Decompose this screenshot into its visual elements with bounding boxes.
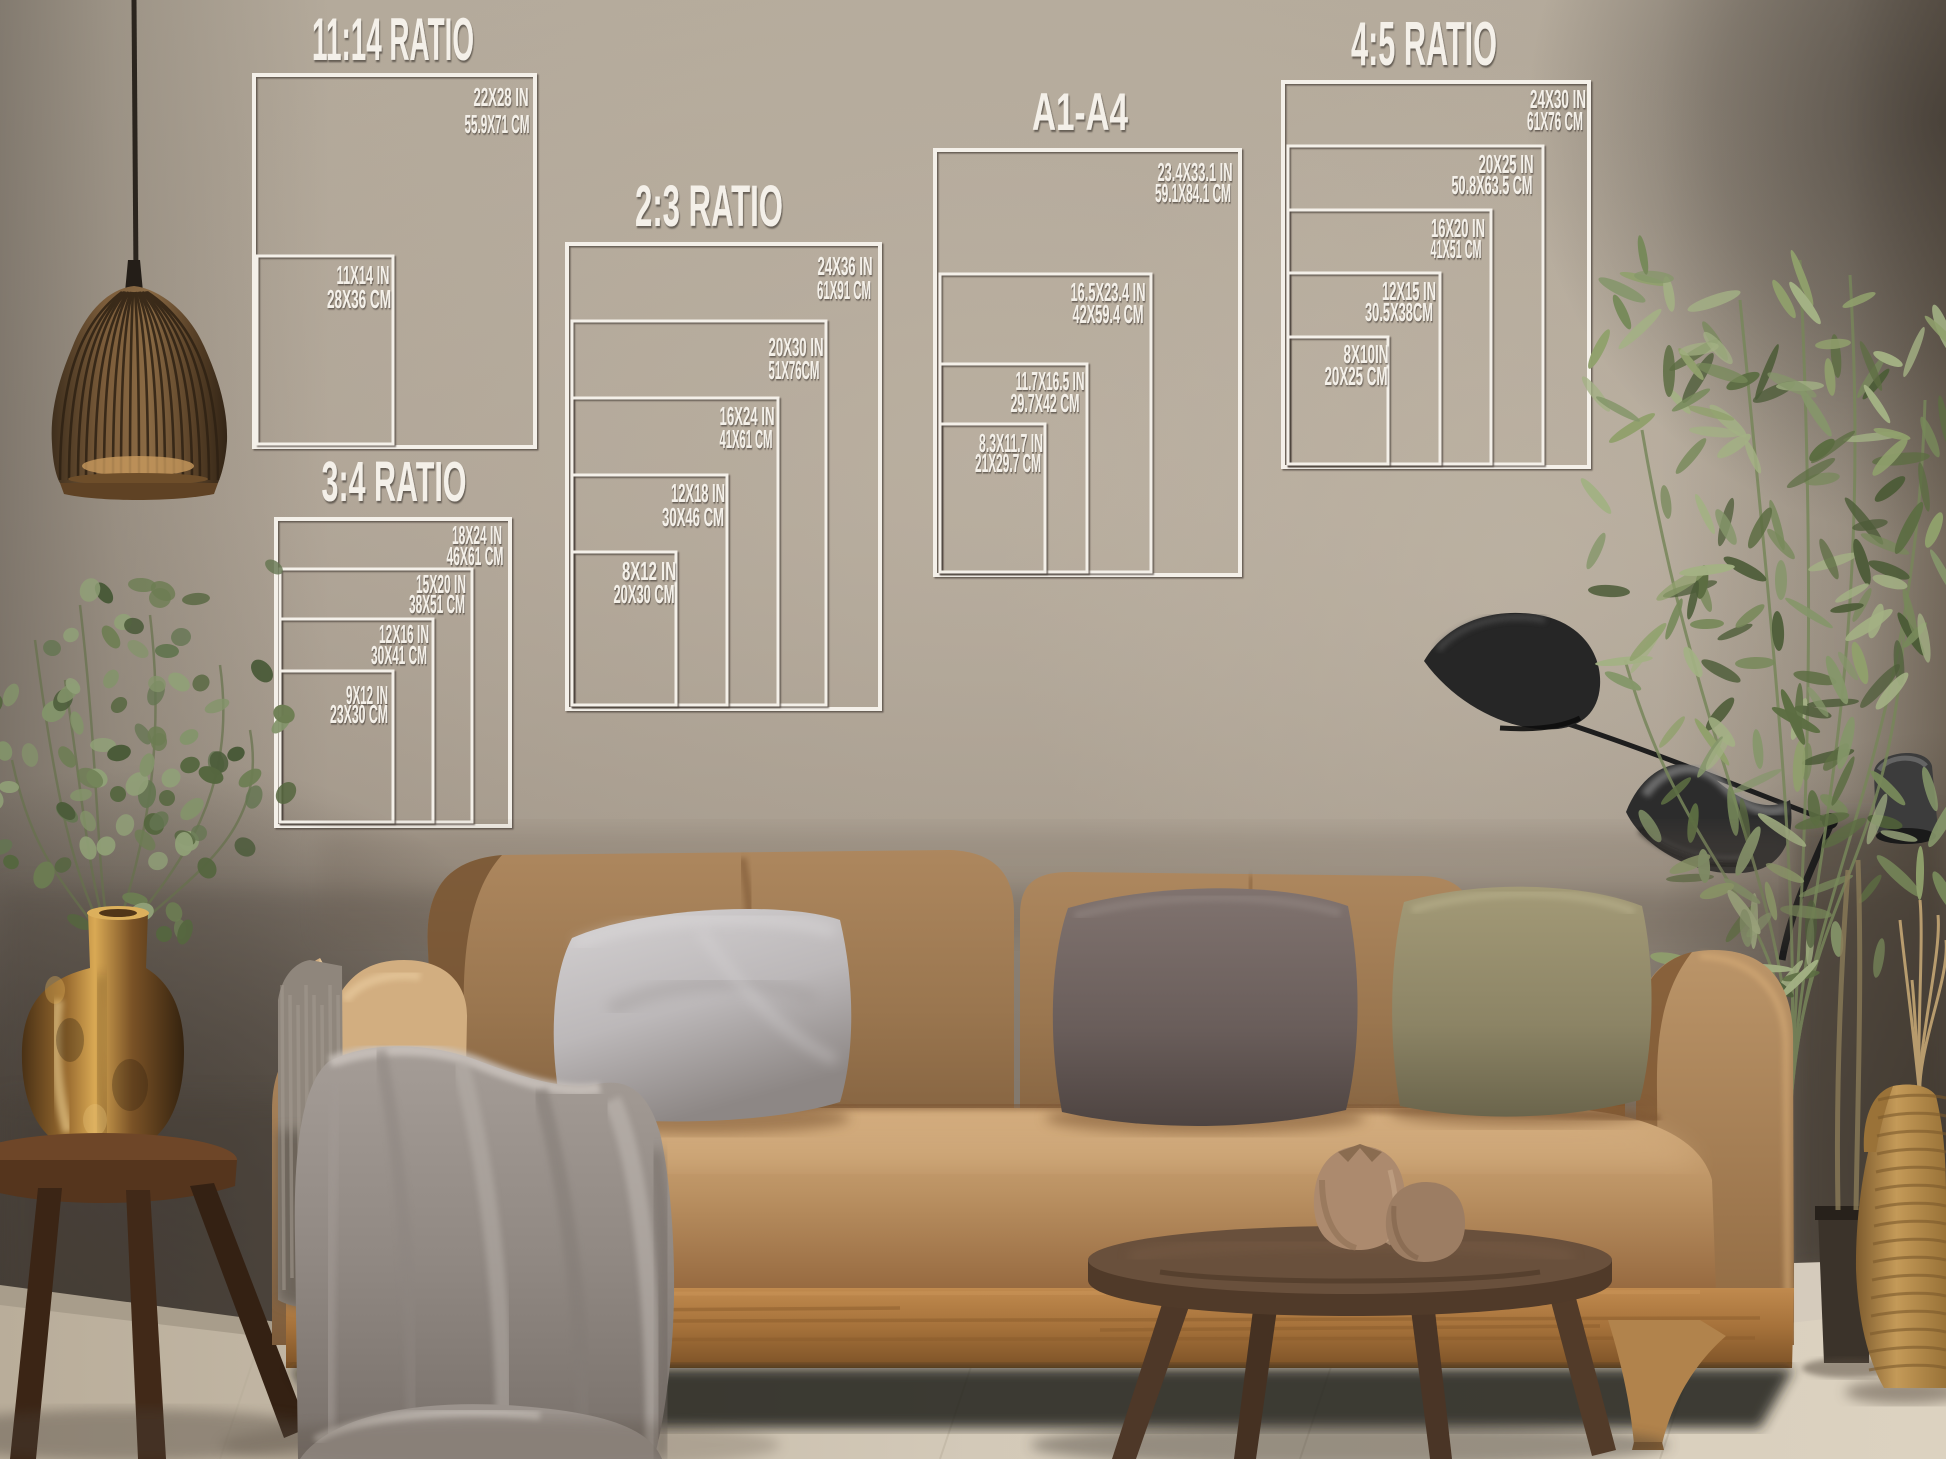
svg-text:A1-A4: A1-A4 (1032, 83, 1128, 142)
svg-text:55.9X71 CM: 55.9X71 CM (465, 111, 530, 139)
svg-text:50.8X63.5 CM: 50.8X63.5 CM (1452, 171, 1533, 200)
svg-text:38X51 CM: 38X51 CM (409, 591, 465, 619)
svg-text:2:3 RATIO: 2:3 RATIO (635, 174, 783, 239)
svg-text:30.5X38CM: 30.5X38CM (1365, 298, 1433, 327)
svg-text:11:14 RATIO: 11:14 RATIO (312, 6, 474, 73)
svg-text:22X28 IN: 22X28 IN (473, 83, 528, 112)
svg-text:42X59.4 CM: 42X59.4 CM (1073, 300, 1144, 329)
svg-text:30X46 CM: 30X46 CM (662, 503, 724, 532)
svg-text:23X30 CM: 23X30 CM (330, 701, 388, 729)
svg-text:61X91 CM: 61X91 CM (817, 277, 871, 305)
svg-text:41X51 CM: 41X51 CM (1431, 236, 1482, 265)
svg-text:29.7X42 CM: 29.7X42 CM (1011, 390, 1080, 418)
svg-text:3:4 RATIO: 3:4 RATIO (322, 450, 467, 514)
svg-text:21X29.7 CM: 21X29.7 CM (975, 450, 1041, 478)
svg-text:59.1X84.1 CM: 59.1X84.1 CM (1155, 180, 1231, 208)
svg-text:20X25 CM: 20X25 CM (1325, 362, 1388, 391)
svg-text:20X30 CM: 20X30 CM (614, 580, 675, 609)
svg-text:4:5 RATIO: 4:5 RATIO (1351, 10, 1497, 78)
svg-text:28X36 CM: 28X36 CM (327, 285, 391, 314)
svg-text:41X61 CM: 41X61 CM (719, 426, 772, 455)
svg-text:61X76 CM: 61X76 CM (1527, 108, 1583, 136)
svg-text:46X61 CM: 46X61 CM (447, 543, 504, 571)
svg-text:30X41 CM: 30X41 CM (371, 642, 427, 670)
svg-text:51X76CM: 51X76CM (769, 357, 820, 385)
